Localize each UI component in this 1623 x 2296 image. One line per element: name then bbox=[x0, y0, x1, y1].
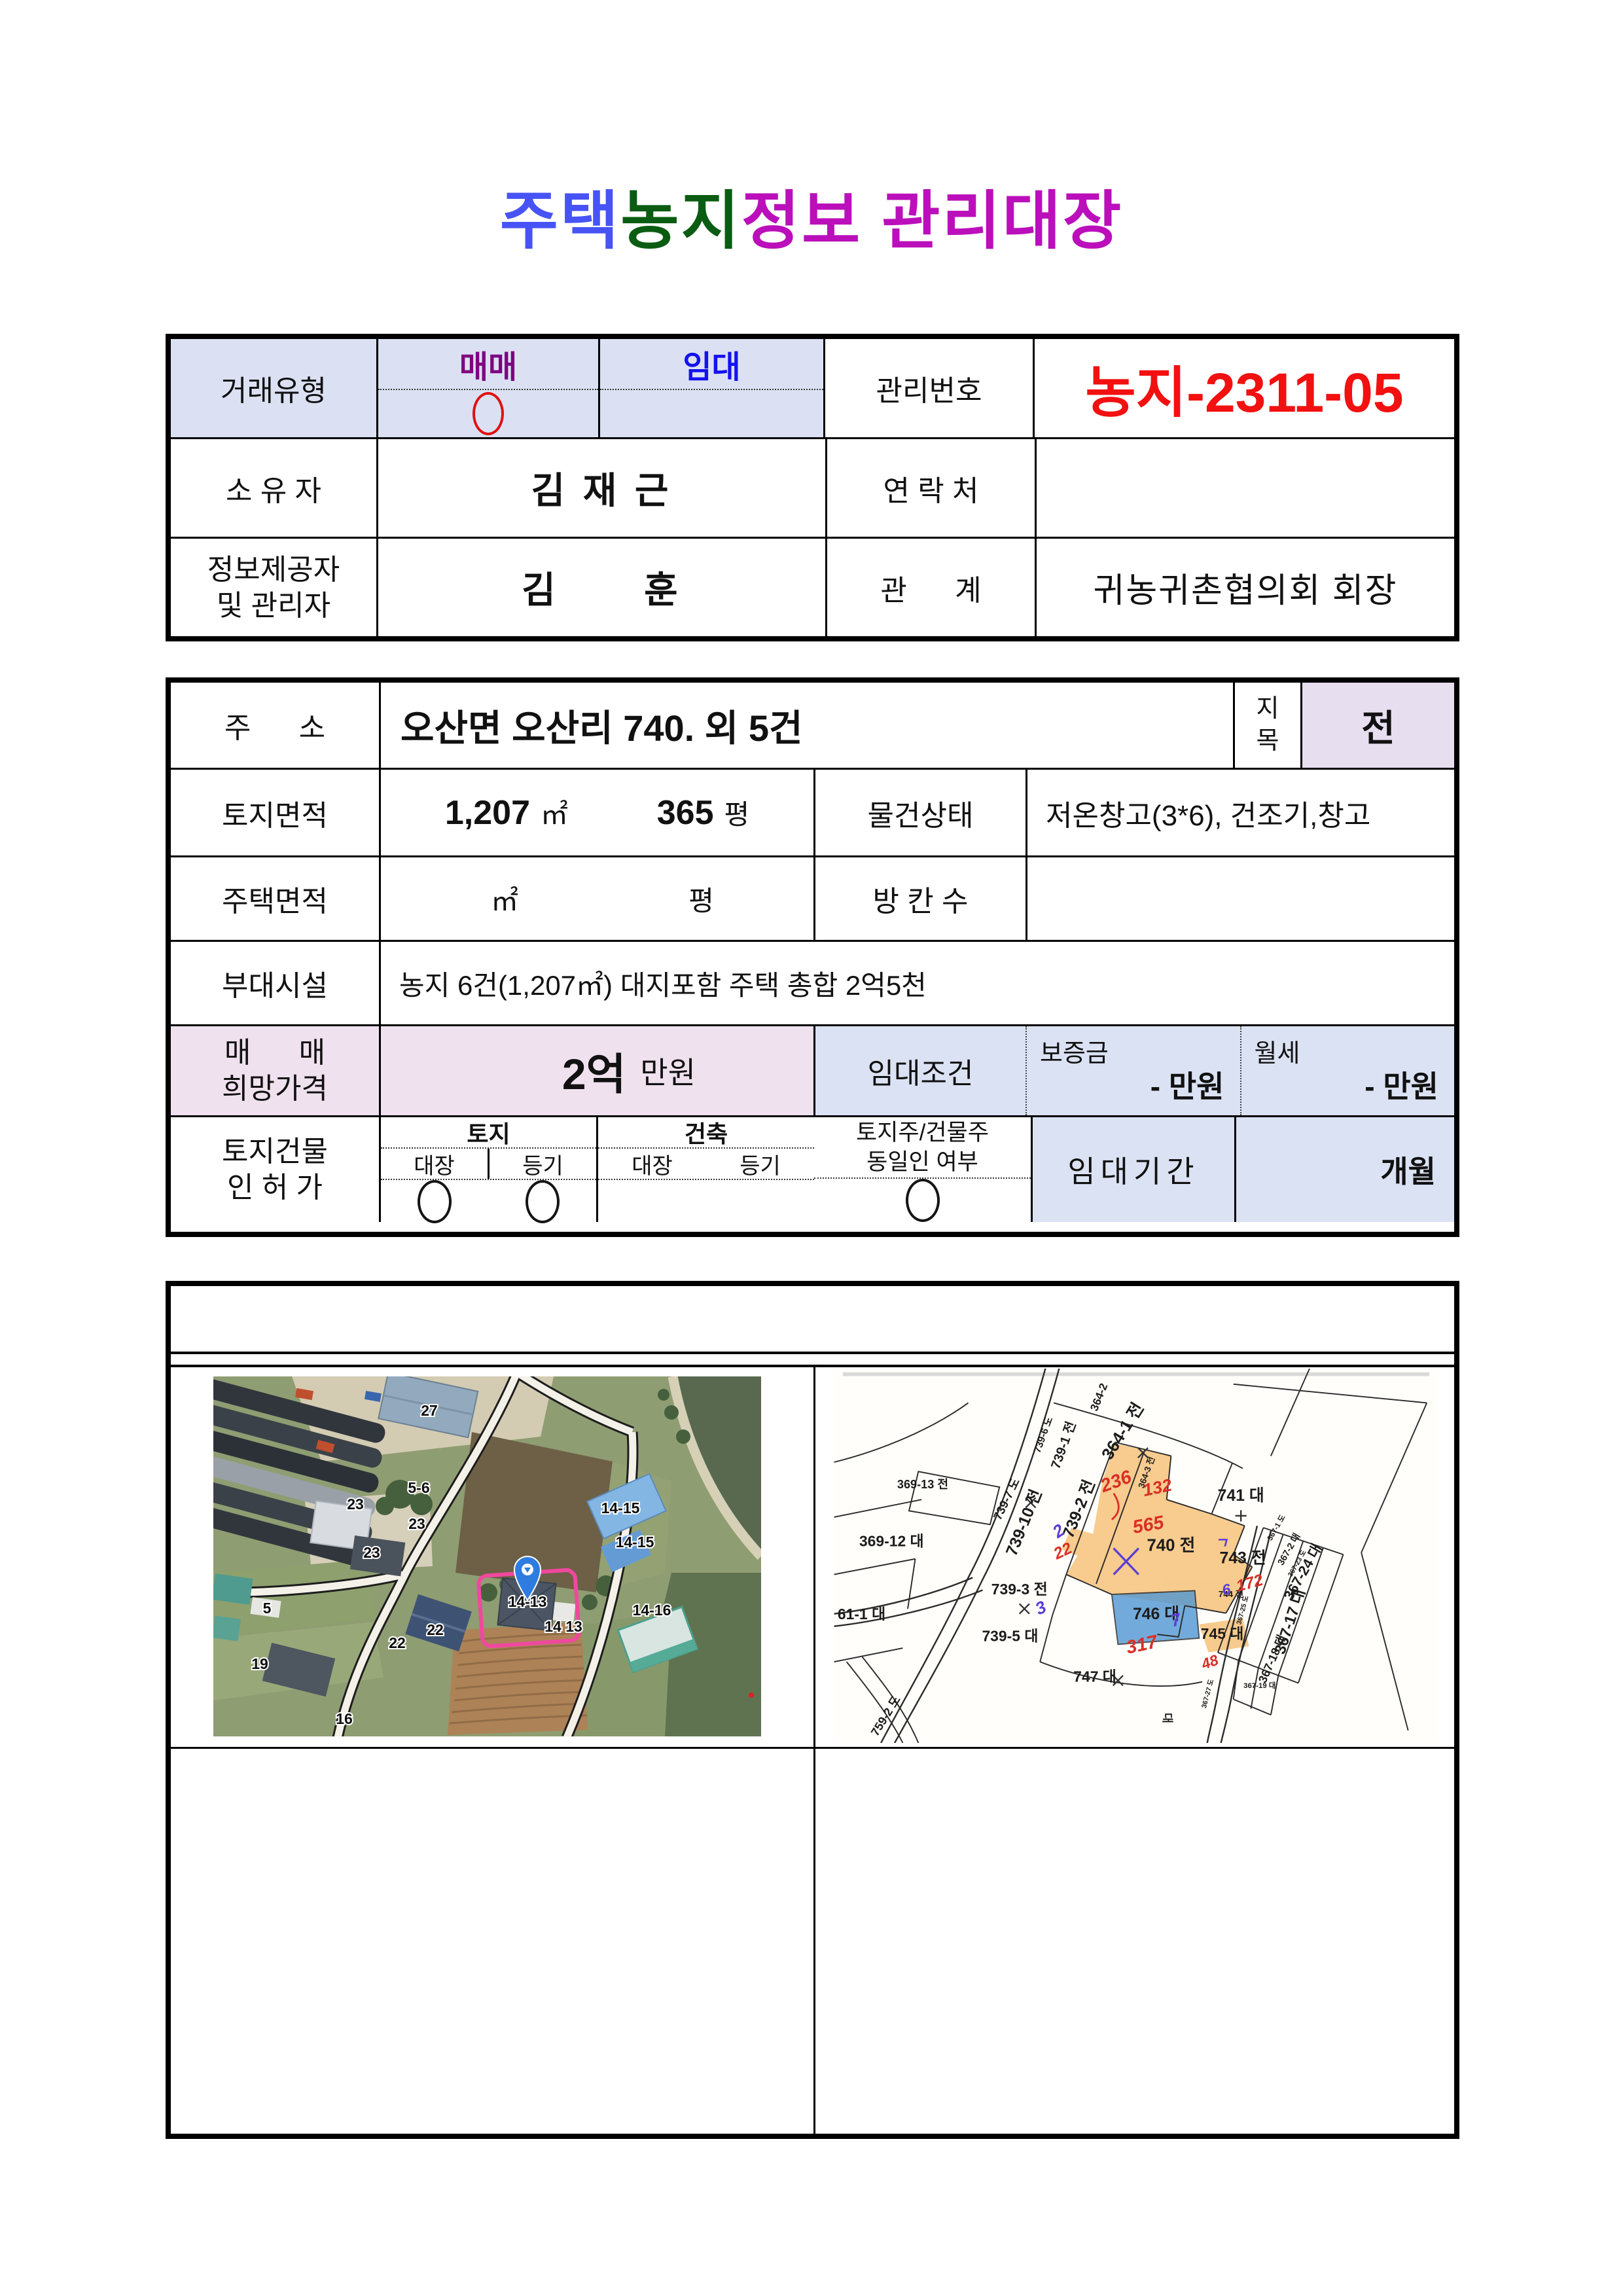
monthly-rent-label: 월세 bbox=[1255, 1033, 1300, 1069]
permit-land-header: 토지 bbox=[381, 1117, 596, 1149]
m2-unit: ㎡ bbox=[541, 793, 568, 833]
land-area-label: 토지면적 bbox=[171, 770, 379, 855]
double-rule bbox=[171, 1352, 1454, 1367]
land-area-m2: 1,207 bbox=[445, 793, 530, 833]
provider-value: 김 훈 bbox=[376, 539, 825, 636]
address-row: 주 소 오산면 오산리 740. 외 5건 지목 전 bbox=[171, 683, 1454, 768]
rent-mark-area bbox=[600, 389, 823, 437]
provider-row: 정보제공자및 관리자 김 훈 관 계 귀농귀촌협의회 회장 bbox=[171, 537, 1454, 636]
svg-text:14-13: 14-13 bbox=[508, 1593, 547, 1610]
svg-text:745 대: 745 대 bbox=[1201, 1625, 1244, 1642]
facilities-label: 부대시설 bbox=[171, 942, 379, 1024]
land-area-pyeong: 365 bbox=[657, 793, 714, 833]
svg-text:22: 22 bbox=[389, 1634, 406, 1651]
svg-text:19: 19 bbox=[251, 1655, 268, 1672]
ledger-document-page: 주택농지정보관리대장 거래유형 매매 임대 관리번호 농지-2311-05 소 … bbox=[0, 0, 1623, 2296]
permit-land-col: 토지 대장 등기 bbox=[381, 1117, 598, 1222]
deal-type-label: 거래유형 bbox=[171, 339, 376, 437]
permit-building-header: 건축 bbox=[598, 1117, 814, 1149]
jimok-value: 전 bbox=[1300, 683, 1454, 768]
page-title: 주택농지정보관리대장 bbox=[0, 169, 1623, 261]
satellite-photo-cell: 275-623232314-1514-1552222191614-1314 13… bbox=[171, 1367, 813, 1747]
same-owner-mark bbox=[814, 1177, 1031, 1222]
svg-text:739-3 전: 739-3 전 bbox=[991, 1581, 1048, 1598]
svg-text:741 대: 741 대 bbox=[1218, 1486, 1264, 1505]
house-area-value: ㎡ 평 bbox=[379, 857, 813, 940]
attachment-section: 275-623232314-1514-1552222191614-1314 13… bbox=[166, 1281, 1459, 2139]
permit-grid: 토지 대장 등기 건축 대장 등기 토지주/건물주동일인 여 bbox=[379, 1117, 1031, 1222]
image-row: 275-623232314-1514-1552222191614-1314 13… bbox=[171, 1367, 1454, 1747]
same-owner-circle-mark bbox=[906, 1179, 940, 1222]
deal-sale-cell: 매매 bbox=[376, 339, 598, 437]
svg-text:61-1 대: 61-1 대 bbox=[838, 1605, 885, 1623]
contact-value bbox=[1035, 439, 1454, 537]
svg-text:369-13 전: 369-13 전 bbox=[897, 1478, 948, 1491]
svg-text:739-5 대: 739-5 대 bbox=[982, 1628, 1038, 1645]
svg-text:367-19 대: 367-19 대 bbox=[1243, 1681, 1275, 1690]
price-value: 2억만원 bbox=[379, 1026, 813, 1115]
owner-value: 김 재 근 bbox=[376, 439, 825, 537]
sale-label: 매매 bbox=[378, 339, 598, 389]
provider-label: 정보제공자및 관리자 bbox=[171, 539, 376, 636]
svg-text:ㄱ: ㄱ bbox=[1214, 1535, 1228, 1552]
address-value: 오산면 오산리 740. 외 5건 bbox=[379, 683, 1233, 768]
basic-info-table: 거래유형 매매 임대 관리번호 농지-2311-05 소 유 자 김 재 근 연… bbox=[166, 334, 1459, 641]
rent-period-unit: 개월 bbox=[1234, 1117, 1454, 1222]
building-registry-label: 등기 bbox=[706, 1149, 814, 1179]
deal-rent-cell: 임대 bbox=[598, 339, 823, 437]
monthly-rent-value: - 만원 bbox=[1364, 1063, 1438, 1106]
land-ledger-label: 대장 bbox=[381, 1149, 488, 1179]
land-area-value: 1,207㎡ 365평 bbox=[379, 770, 813, 855]
rooms-value bbox=[1026, 857, 1454, 940]
svg-text:22: 22 bbox=[427, 1621, 444, 1638]
svg-text:14 13: 14 13 bbox=[544, 1618, 582, 1635]
permit-row: 토지건물인 허 가 토지 대장 등기 건축 대장 등기 bbox=[171, 1115, 1454, 1222]
jimok-label: 지목 bbox=[1233, 683, 1300, 768]
building-marks bbox=[598, 1179, 814, 1222]
permit-building-col: 건축 대장 등기 bbox=[598, 1117, 814, 1222]
svg-text:27: 27 bbox=[421, 1402, 438, 1419]
address-label: 주 소 bbox=[171, 683, 379, 768]
permit-label: 토지건물인 허 가 bbox=[171, 1117, 379, 1222]
svg-text:23: 23 bbox=[363, 1544, 380, 1561]
svg-text:743 전: 743 전 bbox=[1220, 1549, 1266, 1567]
house-area-label: 주택면적 bbox=[171, 857, 379, 940]
svg-text:16: 16 bbox=[336, 1710, 353, 1727]
property-detail-table: 주 소 오산면 오산리 740. 외 5건 지목 전 토지면적 1,207㎡ 3… bbox=[166, 677, 1459, 1237]
monthly-rent-cell: 월세 - 만원 bbox=[1240, 1026, 1455, 1115]
owner-label: 소 유 자 bbox=[171, 439, 376, 537]
rent-label: 임대 bbox=[600, 339, 823, 389]
contact-label: 연 락 처 bbox=[825, 439, 1035, 537]
price-label: 매 매희망가격 bbox=[171, 1026, 379, 1115]
rent-cond-label: 임대조건 bbox=[813, 1026, 1026, 1115]
svg-text:14-16: 14-16 bbox=[633, 1602, 671, 1619]
owner-row: 소 유 자 김 재 근 연 락 처 bbox=[171, 437, 1454, 537]
rent-cond-value: 보증금 - 만원 월세 - 만원 bbox=[1026, 1026, 1454, 1115]
relation-label: 관 계 bbox=[825, 539, 1035, 636]
same-owner-label: 토지주/건물주동일인 여부 bbox=[814, 1117, 1031, 1177]
house-area-row: 주택면적 ㎡ 평 방 칸 수 bbox=[171, 855, 1454, 940]
building-ledger-label: 대장 bbox=[598, 1149, 706, 1179]
cadastral-map-cell: 364-2364-1 전739-6 도739-1 전739-7 도739-10 … bbox=[813, 1367, 1454, 1747]
cadastral-map: 364-2364-1 전739-6 도739-1 전739-7 도739-10 … bbox=[819, 1369, 1453, 1743]
land-marks bbox=[381, 1179, 596, 1223]
rent-period-label: 임대기간 bbox=[1031, 1117, 1234, 1222]
attachment-header-strip bbox=[171, 1286, 1454, 1352]
empty-cell-left bbox=[171, 1749, 813, 2134]
title-ledger: 관리대장 bbox=[882, 185, 1123, 257]
deal-type-row: 거래유형 매매 임대 관리번호 농지-2311-05 bbox=[171, 339, 1454, 437]
facilities-value: 농지 6건(1,207㎡) 대지포함 주택 총합 2억5천 bbox=[379, 942, 1454, 1024]
svg-text:747 대: 747 대 bbox=[1073, 1668, 1116, 1685]
title-farmland: 농지 bbox=[620, 185, 741, 257]
price-row: 매 매희망가격 2억만원 임대조건 보증금 - 만원 월세 - 만원 bbox=[171, 1024, 1454, 1115]
deposit-label: 보증금 bbox=[1040, 1033, 1109, 1069]
rooms-label: 방 칸 수 bbox=[813, 857, 1026, 940]
land-ledger-circle-mark bbox=[418, 1180, 452, 1223]
deposit-cell: 보증금 - 만원 bbox=[1027, 1026, 1240, 1115]
svg-text:14-15: 14-15 bbox=[616, 1534, 654, 1551]
mgmt-no-value: 농지-2311-05 bbox=[1033, 339, 1454, 437]
pyeong-unit: 평 bbox=[724, 793, 750, 833]
empty-cell-right bbox=[813, 1749, 1454, 2134]
deposit-value: - 만원 bbox=[1150, 1063, 1224, 1106]
svg-text:23: 23 bbox=[347, 1496, 364, 1513]
selected-circle-mark bbox=[473, 392, 504, 435]
title-housing: 주택 bbox=[500, 185, 620, 257]
mgmt-no-label: 관리번호 bbox=[823, 339, 1033, 437]
svg-text:대: 대 bbox=[1161, 1713, 1174, 1723]
svg-text:5-6: 5-6 bbox=[408, 1479, 429, 1496]
satellite-image: 275-623232314-1514-1552222191614-1314 13… bbox=[213, 1376, 761, 1736]
svg-text:23: 23 bbox=[408, 1515, 425, 1532]
empty-row bbox=[171, 1749, 1454, 2134]
land-registry-circle-mark bbox=[526, 1180, 560, 1223]
same-owner-col: 토지주/건물주동일인 여부 bbox=[814, 1117, 1031, 1222]
svg-text:369-12 대: 369-12 대 bbox=[859, 1533, 924, 1550]
condition-label: 물건상태 bbox=[813, 770, 1026, 855]
svg-text:14-15: 14-15 bbox=[601, 1499, 640, 1516]
land-area-row: 토지면적 1,207㎡ 365평 물건상태 저온창고(3*6), 건조기,창고 bbox=[171, 768, 1454, 855]
facilities-row: 부대시설 농지 6건(1,207㎡) 대지포함 주택 총합 2억5천 bbox=[171, 940, 1454, 1024]
condition-value: 저온창고(3*6), 건조기,창고 bbox=[1026, 770, 1454, 855]
land-registry-label: 등기 bbox=[488, 1149, 596, 1179]
title-info: 정보 bbox=[741, 185, 862, 257]
relation-value: 귀농귀촌협의회 회장 bbox=[1035, 539, 1454, 636]
sale-mark-area bbox=[378, 389, 598, 437]
svg-text:740 전: 740 전 bbox=[1147, 1535, 1196, 1554]
svg-text:5: 5 bbox=[263, 1600, 272, 1617]
